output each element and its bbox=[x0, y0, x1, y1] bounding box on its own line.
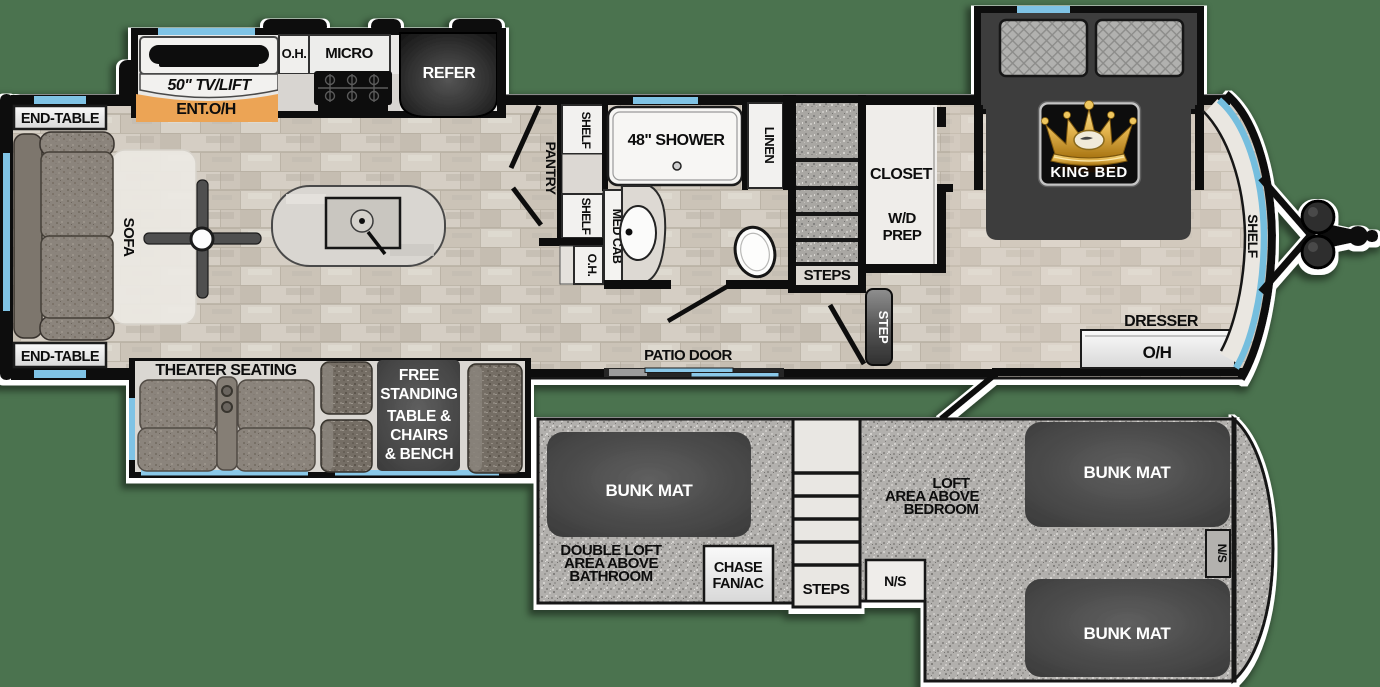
svg-text:O/H: O/H bbox=[1143, 343, 1172, 362]
svg-text:TABLE &: TABLE & bbox=[387, 408, 451, 425]
svg-text:DRESSER: DRESSER bbox=[1124, 313, 1199, 330]
svg-text:SHELF: SHELF bbox=[579, 112, 593, 149]
svg-text:STEPS: STEPS bbox=[804, 267, 851, 284]
svg-text:SOFA: SOFA bbox=[120, 218, 137, 258]
svg-text:BEDROOM: BEDROOM bbox=[904, 501, 979, 518]
svg-text:END-TABLE: END-TABLE bbox=[21, 111, 100, 127]
svg-text:SHELF: SHELF bbox=[579, 198, 593, 235]
svg-text:N/S: N/S bbox=[1215, 544, 1229, 563]
svg-text:REFER: REFER bbox=[423, 65, 476, 82]
svg-text:STEPS: STEPS bbox=[803, 581, 850, 598]
svg-text:48" SHOWER: 48" SHOWER bbox=[628, 132, 726, 149]
svg-text:BUNK MAT: BUNK MAT bbox=[1084, 624, 1172, 643]
svg-text:O.H.: O.H. bbox=[585, 254, 599, 277]
svg-text:CHASE: CHASE bbox=[714, 560, 763, 576]
svg-text:BATHROOM: BATHROOM bbox=[569, 568, 652, 585]
svg-text:50" TV/LIFT: 50" TV/LIFT bbox=[168, 77, 253, 94]
svg-text:MICRO: MICRO bbox=[325, 45, 373, 62]
svg-text:ENT.O/H: ENT.O/H bbox=[176, 101, 236, 118]
svg-text:SHELF: SHELF bbox=[1245, 214, 1261, 258]
svg-text:W/D: W/D bbox=[888, 210, 916, 227]
svg-text:BUNK MAT: BUNK MAT bbox=[606, 481, 694, 500]
svg-text:STEP: STEP bbox=[876, 311, 891, 344]
svg-text:BUNK MAT: BUNK MAT bbox=[1084, 463, 1172, 482]
svg-text:& BENCH: & BENCH bbox=[385, 446, 454, 463]
svg-text:N/S: N/S bbox=[884, 573, 906, 589]
svg-text:END-TABLE: END-TABLE bbox=[21, 349, 100, 365]
svg-text:O.H.: O.H. bbox=[282, 46, 307, 61]
svg-text:FREE: FREE bbox=[399, 367, 439, 384]
svg-text:PANTRY: PANTRY bbox=[543, 142, 559, 196]
svg-text:CHAIRS: CHAIRS bbox=[390, 427, 448, 444]
svg-text:PREP: PREP bbox=[883, 227, 922, 244]
svg-text:STANDING: STANDING bbox=[380, 386, 458, 403]
svg-text:KING BED: KING BED bbox=[1050, 164, 1127, 181]
svg-text:PATIO DOOR: PATIO DOOR bbox=[644, 347, 732, 364]
svg-text:LINEN: LINEN bbox=[762, 127, 777, 164]
svg-text:FAN/AC: FAN/AC bbox=[713, 576, 765, 592]
svg-text:CLOSET: CLOSET bbox=[870, 166, 933, 183]
